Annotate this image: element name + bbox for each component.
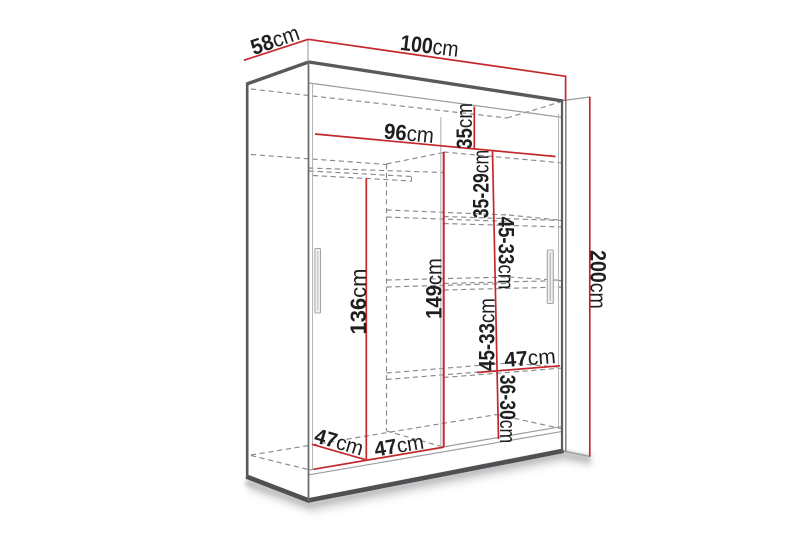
svg-text:200cm: 200cm — [586, 250, 610, 309]
svg-text:136cm: 136cm — [346, 268, 371, 334]
svg-text:36-30cm: 36-30cm — [494, 375, 518, 443]
svg-text:45-33cm: 45-33cm — [493, 217, 517, 290]
svg-text:47cm: 47cm — [503, 344, 556, 371]
svg-text:35-29cm: 35-29cm — [470, 150, 494, 218]
svg-text:100cm: 100cm — [399, 30, 460, 61]
svg-text:35cm: 35cm — [452, 103, 477, 149]
svg-text:149cm: 149cm — [422, 258, 446, 319]
svg-text:47cm: 47cm — [312, 424, 366, 460]
svg-text:45-33cm: 45-33cm — [476, 298, 500, 371]
svg-text:96cm: 96cm — [383, 119, 435, 148]
svg-text:58cm: 58cm — [247, 20, 302, 60]
